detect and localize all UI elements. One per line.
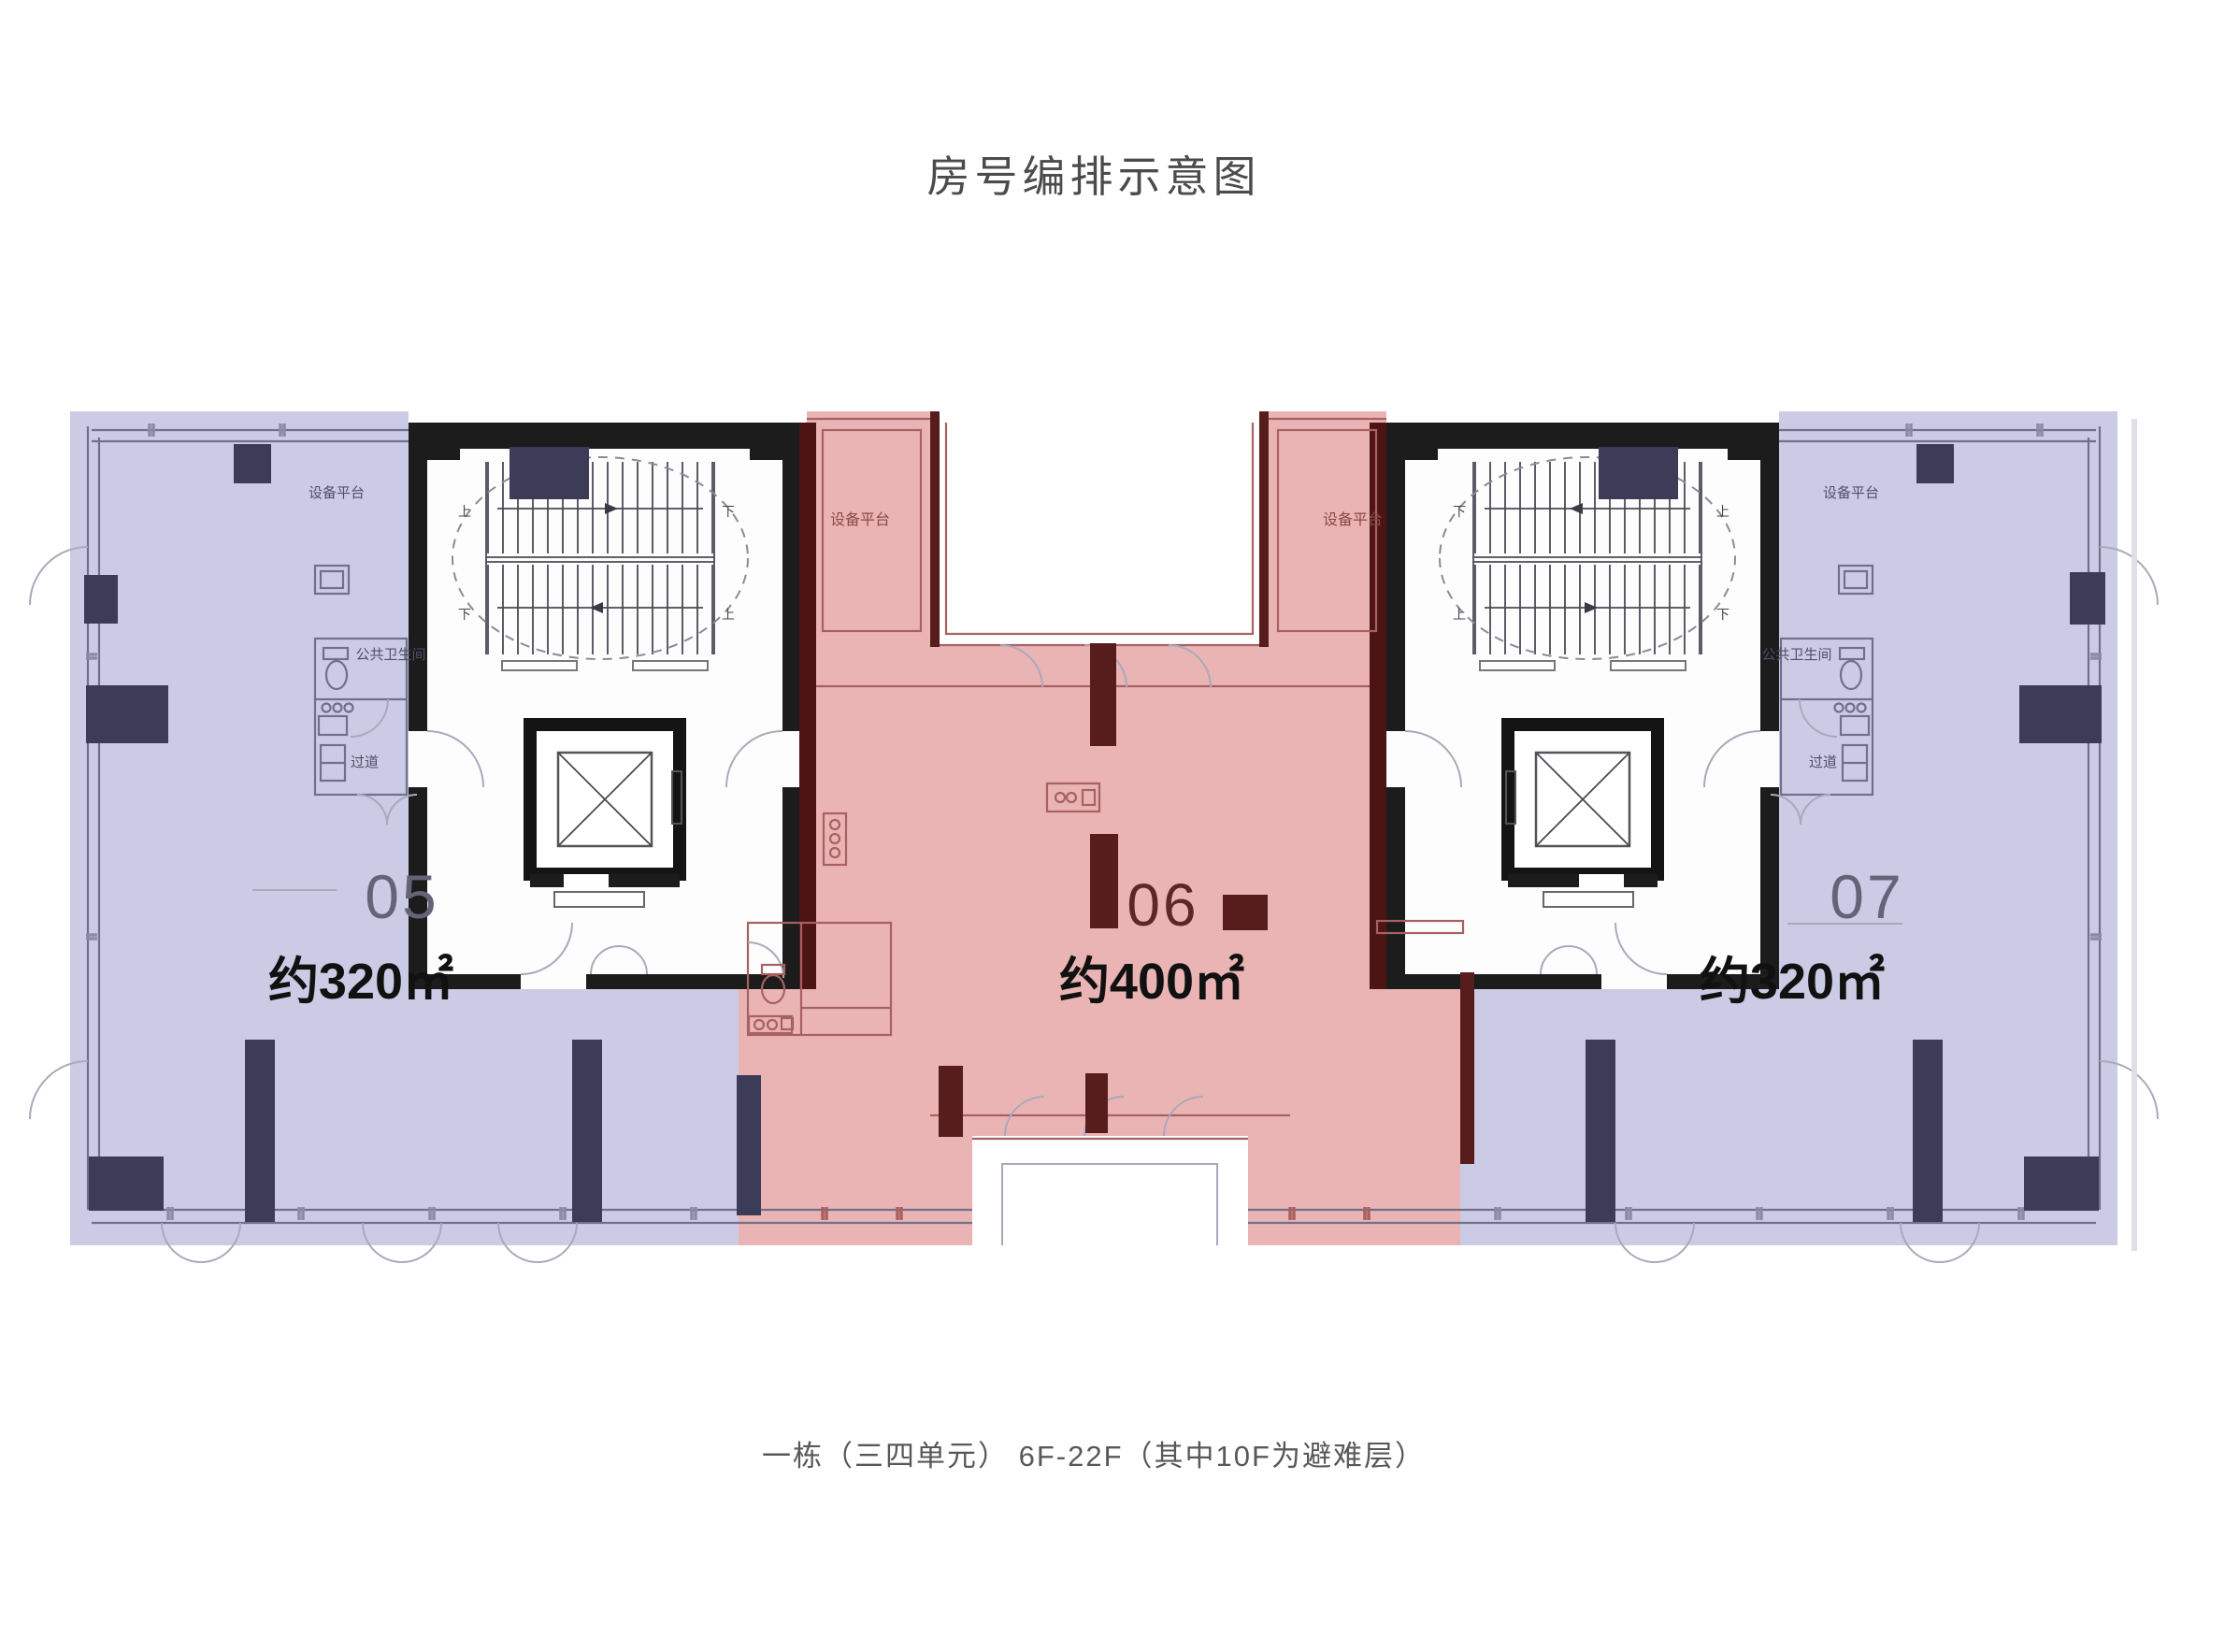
equipment-platform-label: 设备平台 (1323, 511, 1383, 528)
right-junction-wall (1370, 423, 1386, 989)
corridor-label: 过道 (1809, 754, 1837, 770)
public-restroom-label: 公共卫生间 (1761, 647, 1831, 663)
column (2019, 685, 2102, 743)
column (1223, 895, 1268, 930)
unit-06-number: 06 (1127, 871, 1198, 939)
floorplan-canvas: 房号编排示意图 一栋（三四单元） 6F-22F（其中10F为避难层） 上 下 下… (0, 0, 2239, 1652)
stair-label-down: 下 (722, 504, 735, 519)
wall-stub (1090, 834, 1118, 928)
wall-stub (572, 1040, 602, 1222)
wall-stub (1460, 972, 1474, 1164)
stair-label-down: 下 (458, 607, 471, 622)
page-title: 房号编排示意图 (927, 152, 1261, 201)
unit-05-number: 05 (365, 862, 438, 931)
top-notch-outline (935, 411, 1264, 645)
column (2024, 1156, 2099, 1211)
wall-stub (1085, 1073, 1108, 1133)
unit-07-number: 07 (1830, 862, 1903, 931)
corridor-label: 过道 (351, 754, 379, 770)
column (84, 575, 118, 624)
wall-stub (1090, 643, 1116, 746)
edge-shadow (2131, 419, 2137, 1251)
column (1599, 447, 1678, 499)
public-restroom-label: 公共卫生间 (355, 647, 425, 663)
wall-stub (1586, 1040, 1615, 1222)
equipment-platform-label: 设备平台 (309, 485, 365, 501)
column (510, 447, 589, 499)
unit-05-area: 约320㎡ (268, 953, 453, 1010)
unit-07-area: 约320㎡ (1700, 953, 1885, 1010)
stair-label-down: 下 (1453, 504, 1466, 519)
column (234, 444, 271, 483)
equipment-platform-label: 设备平台 (830, 511, 890, 528)
wall-stub (737, 1075, 761, 1215)
bottom-notch-inner-step (1002, 1164, 1217, 1245)
column (1916, 444, 1954, 483)
left-junction-wall (799, 423, 816, 989)
stair-label-up: 上 (1453, 607, 1466, 622)
notch-flank-wall (1259, 411, 1269, 647)
notch-flank-wall (930, 411, 940, 647)
wall-stub (939, 1066, 963, 1137)
floorplan-page: 房号编排示意图 一栋（三四单元） 6F-22F（其中10F为避难层） 上 下 下… (0, 0, 2239, 1652)
stair-label-up: 上 (722, 607, 735, 622)
wall-stub (245, 1040, 275, 1222)
equipment-platform-label: 设备平台 (1823, 485, 1879, 501)
column (89, 1156, 164, 1211)
plan-caption: 一栋（三四单元） 6F-22F（其中10F为避难层） (762, 1440, 1426, 1472)
stair-label-up: 上 (458, 504, 471, 519)
wall-stub (1913, 1040, 1943, 1222)
unit-06-area: 约400㎡ (1059, 953, 1244, 1010)
stair-label-down: 下 (1716, 607, 1729, 622)
column (2070, 572, 2105, 625)
stair-label-up: 上 (1716, 504, 1729, 519)
column (86, 685, 168, 743)
